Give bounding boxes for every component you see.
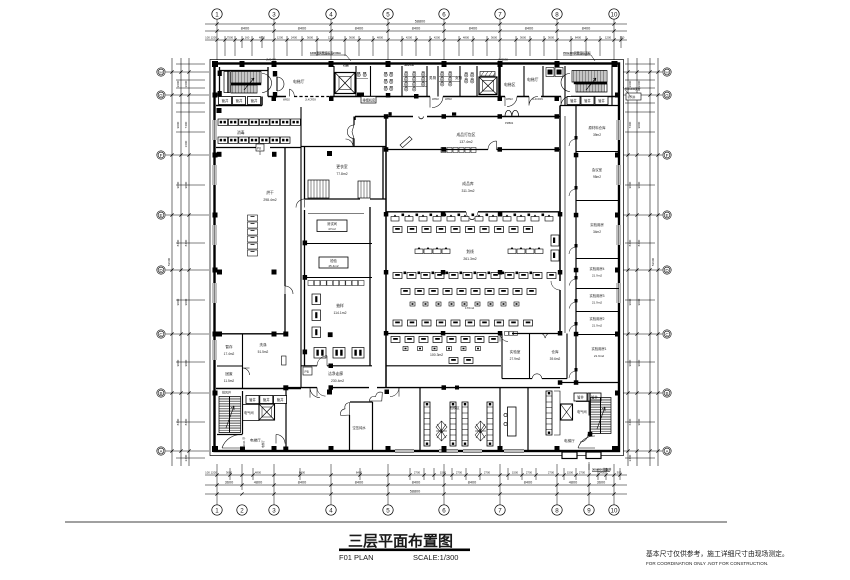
svg-text:51.5m2: 51.5m2 <box>258 350 269 354</box>
svg-text:34m2: 34m2 <box>593 230 601 234</box>
svg-text:261.3m2: 261.3m2 <box>463 257 476 261</box>
svg-text:9000: 9000 <box>176 181 180 188</box>
svg-text:1: 1 <box>215 11 219 18</box>
svg-text:230.4m2: 230.4m2 <box>331 379 344 383</box>
svg-text:实验用房2: 实验用房2 <box>589 316 604 321</box>
svg-text:27.9m2: 27.9m2 <box>510 357 521 361</box>
svg-text:4800: 4800 <box>259 36 266 40</box>
svg-text:53600: 53600 <box>651 257 655 266</box>
svg-text:4: 4 <box>329 507 333 514</box>
svg-text:2700: 2700 <box>526 471 533 475</box>
svg-text:3600: 3600 <box>226 471 233 475</box>
svg-text:700x400风管底标高标: 700x400风管底标高标 <box>563 51 591 55</box>
svg-text:45.4m2: 45.4m2 <box>328 264 339 268</box>
svg-text:JL4CR39: JL4CR39 <box>305 98 316 102</box>
svg-text:77.8m2: 77.8m2 <box>336 172 347 176</box>
svg-text:8400: 8400 <box>184 418 188 425</box>
svg-text:5: 5 <box>386 507 390 514</box>
svg-text:100 1200: 100 1200 <box>205 471 217 475</box>
svg-text:8400: 8400 <box>176 239 180 246</box>
svg-text:6: 6 <box>442 11 446 18</box>
svg-text:8400: 8400 <box>298 481 306 485</box>
svg-text:2400: 2400 <box>291 36 298 40</box>
svg-text:8400: 8400 <box>582 27 590 31</box>
svg-text:3600: 3600 <box>637 80 641 87</box>
svg-text:1500: 1500 <box>512 471 519 475</box>
svg-text:电气间: 电气间 <box>244 410 254 415</box>
svg-text:新风井: 新风井 <box>628 95 636 99</box>
svg-text:3600: 3600 <box>349 36 356 40</box>
svg-text:4800: 4800 <box>569 481 577 485</box>
svg-text:暂存: 暂存 <box>225 344 233 349</box>
svg-text:3: 3 <box>272 11 276 18</box>
svg-text:3600: 3600 <box>184 80 188 87</box>
svg-text:1200: 1200 <box>328 36 335 40</box>
svg-text:47m2: 47m2 <box>328 227 336 231</box>
svg-text:9000: 9000 <box>637 359 641 366</box>
svg-text:测试间: 测试间 <box>327 221 337 226</box>
svg-text:W802: W802 <box>283 98 290 102</box>
svg-text:电梯区: 电梯区 <box>504 82 516 87</box>
svg-text:9000: 9000 <box>184 359 188 366</box>
svg-text:3: 3 <box>272 507 276 514</box>
svg-text:JM0400: JM0400 <box>266 58 276 62</box>
svg-text:21.9m2: 21.9m2 <box>592 324 603 328</box>
svg-text:4800: 4800 <box>254 481 262 485</box>
svg-text:8400: 8400 <box>468 481 476 485</box>
svg-text:消毒: 消毒 <box>237 130 245 135</box>
svg-text:21.9m2: 21.9m2 <box>592 274 603 278</box>
svg-text:JM2530: JM2530 <box>498 58 508 62</box>
svg-text:G: G <box>665 93 669 98</box>
svg-text:基本尺寸仅供参考，施工详细尺寸由现场测定。: 基本尺寸仅供参考，施工详细尺寸由现场测定。 <box>646 549 789 558</box>
svg-text:2400: 2400 <box>184 454 188 461</box>
svg-text:5: 5 <box>386 11 390 18</box>
svg-text:划线: 划线 <box>466 249 474 254</box>
svg-text:P8: P8 <box>257 147 261 151</box>
svg-text:4200: 4200 <box>406 36 413 40</box>
svg-text:3600: 3600 <box>307 36 314 40</box>
svg-text:100.3m2: 100.3m2 <box>430 353 443 357</box>
svg-text:H: H <box>159 70 162 75</box>
svg-text:8400: 8400 <box>355 481 363 485</box>
svg-text:3600: 3600 <box>597 481 605 485</box>
svg-text:抽样: 抽样 <box>336 303 344 308</box>
svg-text:B: B <box>159 391 162 396</box>
svg-text:烘干: 烘干 <box>266 190 274 195</box>
svg-text:2400: 2400 <box>628 454 632 461</box>
svg-text:7: 7 <box>498 507 502 514</box>
svg-text:8: 8 <box>555 11 559 18</box>
svg-text:会议室: 会议室 <box>592 167 603 172</box>
svg-text:FOR COORDINATION ONLY .NOT FOR: FOR COORDINATION ONLY .NOT FOR CONSTRUCT… <box>646 561 768 566</box>
svg-text:实验室: 实验室 <box>510 349 521 354</box>
svg-text:311.3m2: 311.3m2 <box>462 189 475 193</box>
svg-text:3600: 3600 <box>225 481 233 485</box>
svg-text:电梯厅: 电梯厅 <box>293 79 305 84</box>
svg-text:成品库: 成品库 <box>462 181 474 186</box>
svg-text:更衣室: 更衣室 <box>336 164 348 169</box>
svg-text:2: 2 <box>240 507 244 514</box>
svg-text:3600: 3600 <box>520 36 527 40</box>
svg-text:8400: 8400 <box>412 481 420 485</box>
svg-text:电梯厅: 电梯厅 <box>250 438 261 443</box>
svg-text:女厕: 女厕 <box>455 75 463 80</box>
svg-text:2700: 2700 <box>414 471 421 475</box>
svg-text:1200: 1200 <box>605 36 612 40</box>
svg-text:8400: 8400 <box>637 239 641 246</box>
svg-text:实验用房4: 实验用房4 <box>589 266 604 271</box>
svg-text:电梯厅: 电梯厅 <box>564 438 575 443</box>
svg-text:39m2: 39m2 <box>593 133 601 137</box>
svg-text:7: 7 <box>498 11 502 18</box>
svg-text:排风井: 排风井 <box>222 390 231 395</box>
svg-text:4800: 4800 <box>255 471 262 475</box>
svg-text:JL4CR39: JL4CR39 <box>532 97 543 101</box>
svg-text:男厕: 男厕 <box>429 75 437 80</box>
svg-text:三层平面布置图: 三层平面布置图 <box>348 532 453 550</box>
svg-text:10: 10 <box>611 11 618 18</box>
svg-text:8400: 8400 <box>241 27 249 31</box>
svg-text:JM2530: JM2530 <box>404 63 415 67</box>
svg-text:4: 4 <box>329 11 333 18</box>
svg-text:3600: 3600 <box>491 36 498 40</box>
svg-text:2700: 2700 <box>579 471 586 475</box>
svg-text:PM802: PM802 <box>505 121 514 125</box>
svg-text:100: 100 <box>620 36 625 40</box>
svg-text:电气间: 电气间 <box>577 409 587 414</box>
svg-text:检验: 检验 <box>330 258 337 263</box>
svg-text:FM1021 甲: FM1021 甲 <box>242 437 246 450</box>
svg-text:洁净走廊: 洁净走廊 <box>328 371 343 376</box>
svg-text:100 1200: 100 1200 <box>205 36 217 40</box>
svg-text:58800: 58800 <box>410 490 421 494</box>
svg-text:8400: 8400 <box>176 418 180 425</box>
svg-text:8400: 8400 <box>525 27 533 31</box>
svg-text:298.4m2: 298.4m2 <box>263 198 276 202</box>
svg-text:挡烟: 挡烟 <box>343 63 349 67</box>
svg-text:F: F <box>160 153 163 158</box>
svg-text:F: F <box>666 153 669 158</box>
svg-text:实验用房3: 实验用房3 <box>589 293 604 298</box>
svg-text:W822: W822 <box>506 97 513 101</box>
svg-text:2700: 2700 <box>484 471 491 475</box>
svg-text:1200: 1200 <box>277 36 284 40</box>
svg-text:2700: 2700 <box>456 471 463 475</box>
svg-text:B: B <box>665 391 668 396</box>
svg-text:空压纯水: 空压纯水 <box>353 425 367 430</box>
svg-text:3600: 3600 <box>628 80 632 87</box>
svg-text:8400: 8400 <box>355 27 363 31</box>
svg-text:7500: 7500 <box>227 36 234 40</box>
svg-text:1: 1 <box>215 507 219 514</box>
svg-text:电梯厅: 电梯厅 <box>527 77 539 82</box>
svg-text:H: H <box>665 70 668 75</box>
svg-text:1500: 1500 <box>567 471 574 475</box>
svg-text:300: 300 <box>617 471 622 475</box>
svg-text:电梯厅: 电梯厅 <box>261 440 265 448</box>
svg-text:9000: 9000 <box>637 121 641 128</box>
svg-text:8400: 8400 <box>299 471 306 475</box>
svg-text:114.1m2: 114.1m2 <box>334 311 347 315</box>
svg-text:9: 9 <box>587 507 591 514</box>
svg-text:160: 160 <box>245 36 250 40</box>
svg-text:SCALE:1/300: SCALE:1/300 <box>413 553 458 562</box>
svg-text:8400: 8400 <box>356 471 363 475</box>
svg-text:6400: 6400 <box>628 418 632 425</box>
svg-text:8400: 8400 <box>575 36 582 40</box>
svg-text:8400: 8400 <box>628 239 632 246</box>
svg-text:9000: 9000 <box>628 298 632 305</box>
svg-text:2700: 2700 <box>548 471 555 475</box>
svg-text:8400: 8400 <box>524 481 532 485</box>
svg-text:1500: 1500 <box>440 471 447 475</box>
svg-text:9000: 9000 <box>628 359 632 366</box>
svg-text:58800: 58800 <box>415 20 426 24</box>
svg-text:成品打包区: 成品打包区 <box>457 132 476 137</box>
svg-text:17.4m2: 17.4m2 <box>224 352 235 356</box>
svg-text:7400: 7400 <box>184 121 188 128</box>
svg-text:11.5m2: 11.5m2 <box>224 379 235 383</box>
svg-text:4800: 4800 <box>463 36 470 40</box>
svg-text:1200宽风管底标高2.60m: 1200宽风管底标高2.60m <box>310 51 341 55</box>
svg-text:170m2: 170m2 <box>465 306 475 310</box>
svg-text:6: 6 <box>442 507 446 514</box>
svg-text:8400: 8400 <box>184 239 188 246</box>
svg-text:500x400风管: 500x400风管 <box>625 87 641 91</box>
svg-text:39.6m2: 39.6m2 <box>550 357 561 361</box>
svg-text:仓库: 仓库 <box>551 349 559 354</box>
svg-text:E: E <box>665 213 668 218</box>
svg-text:9000: 9000 <box>637 181 641 188</box>
svg-text:137.4m2: 137.4m2 <box>459 140 472 144</box>
svg-text:9000: 9000 <box>184 298 188 305</box>
svg-text:21.9m2: 21.9m2 <box>594 354 605 358</box>
svg-text:9000: 9000 <box>628 181 632 188</box>
svg-text:W802: W802 <box>445 97 452 101</box>
svg-text:95m2: 95m2 <box>593 175 601 179</box>
svg-text:P8: P8 <box>305 370 309 374</box>
svg-text:9000: 9000 <box>176 298 180 305</box>
svg-text:1600: 1600 <box>184 140 188 147</box>
svg-text:10: 10 <box>611 507 618 514</box>
svg-text:3600: 3600 <box>548 36 555 40</box>
svg-text:9000: 9000 <box>176 359 180 366</box>
svg-text:实验用房: 实验用房 <box>590 222 604 227</box>
svg-text:9000: 9000 <box>637 418 641 425</box>
svg-text:300x400排烟井: 300x400排烟井 <box>592 468 611 472</box>
svg-text:8400: 8400 <box>412 27 420 31</box>
svg-text:8400: 8400 <box>298 27 306 31</box>
svg-text:W802: W802 <box>432 97 439 101</box>
svg-text:实验用房1: 实验用房1 <box>591 346 606 351</box>
svg-text:F01 PLAN: F01 PLAN <box>339 553 374 562</box>
svg-text:排烟机房: 排烟机房 <box>363 98 376 103</box>
svg-text:9000: 9000 <box>637 298 641 305</box>
svg-text:固废: 固废 <box>225 371 233 376</box>
svg-text:9000: 9000 <box>184 181 188 188</box>
svg-text:7400: 7400 <box>628 121 632 128</box>
svg-text:53600: 53600 <box>167 257 171 266</box>
svg-text:G: G <box>159 93 163 98</box>
svg-text:4200: 4200 <box>434 36 441 40</box>
svg-text:21.9m2: 21.9m2 <box>592 301 603 305</box>
svg-text:8: 8 <box>555 507 559 514</box>
svg-text:9000: 9000 <box>176 121 180 128</box>
svg-text:4800: 4800 <box>377 36 384 40</box>
svg-text:3600: 3600 <box>176 80 180 87</box>
svg-text:8400: 8400 <box>469 27 477 31</box>
svg-text:检模区: 检模区 <box>450 405 460 410</box>
svg-text:原材料仓库: 原材料仓库 <box>589 125 607 130</box>
svg-text:E: E <box>159 213 162 218</box>
svg-text:洗涤: 洗涤 <box>259 342 267 347</box>
